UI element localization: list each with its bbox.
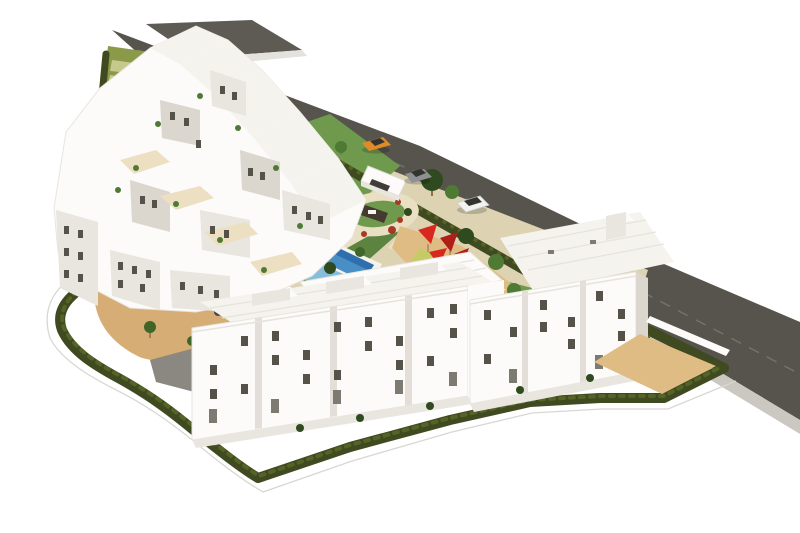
property-aerial-render: [0, 0, 800, 533]
render-stage: [0, 0, 800, 533]
